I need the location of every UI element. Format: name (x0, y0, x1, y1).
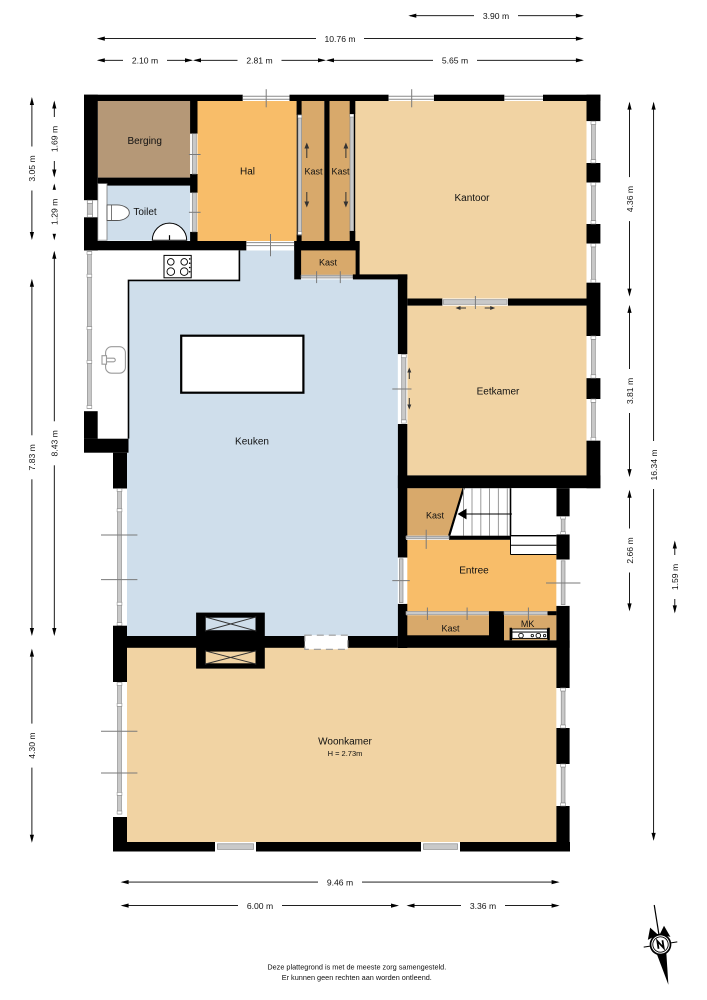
svg-text:H = 2.73m: H = 2.73m (328, 749, 363, 758)
svg-text:3.81 m: 3.81 m (625, 378, 635, 404)
svg-text:Kast: Kast (441, 624, 460, 634)
svg-text:10.76 m: 10.76 m (324, 34, 355, 44)
svg-text:Kast: Kast (304, 167, 323, 177)
svg-text:1.69 m: 1.69 m (50, 126, 60, 152)
svg-text:2.10 m: 2.10 m (132, 56, 158, 66)
svg-text:Entree: Entree (459, 566, 489, 577)
svg-text:3.05 m: 3.05 m (27, 155, 37, 181)
svg-text:7.83 m: 7.83 m (27, 444, 37, 470)
svg-text:8.43 m: 8.43 m (50, 430, 60, 456)
svg-text:2.66 m: 2.66 m (625, 537, 635, 563)
svg-text:4.30 m: 4.30 m (27, 732, 37, 758)
svg-text:3.36 m: 3.36 m (470, 901, 496, 911)
svg-text:MK: MK (521, 619, 535, 629)
svg-text:Keuken: Keuken (235, 437, 269, 448)
svg-text:Er kunnen geen rechten aan wor: Er kunnen geen rechten aan worden ontlee… (282, 973, 432, 982)
svg-text:Hal: Hal (240, 167, 255, 178)
svg-text:1.29 m: 1.29 m (50, 199, 60, 225)
svg-text:16.34 m: 16.34 m (649, 449, 659, 480)
svg-text:Kast: Kast (331, 167, 350, 177)
svg-text:Toilet: Toilet (133, 207, 157, 218)
svg-text:5.65 m: 5.65 m (442, 56, 468, 66)
svg-text:Eetkamer: Eetkamer (477, 387, 520, 398)
svg-text:9.46 m: 9.46 m (327, 877, 353, 887)
svg-text:Woonkamer: Woonkamer (318, 737, 372, 748)
svg-text:Kantoor: Kantoor (454, 193, 490, 204)
svg-text:Deze plattegrond is met de mee: Deze plattegrond is met de meeste zorg s… (267, 963, 446, 972)
svg-text:6.00 m: 6.00 m (247, 901, 273, 911)
svg-text:1.59 m: 1.59 m (670, 564, 680, 590)
svg-text:Berging: Berging (127, 136, 161, 147)
svg-text:4.36 m: 4.36 m (625, 186, 635, 212)
svg-text:2.81 m: 2.81 m (246, 56, 272, 66)
svg-text:Kast: Kast (426, 511, 445, 521)
svg-text:3.90 m: 3.90 m (483, 11, 509, 21)
svg-text:Kast: Kast (319, 258, 338, 268)
